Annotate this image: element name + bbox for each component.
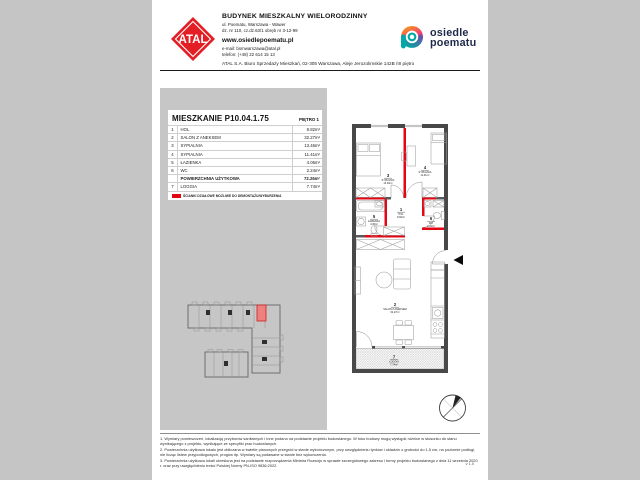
room-label-sypialnia-3: 3 SYPIALNIA 13.46m² xyxy=(382,173,395,185)
page-canvas: ATAL BUDYNEK MIESZKALNY WIELORODZINNY ul… xyxy=(0,0,640,480)
atal-logo: ATAL xyxy=(170,16,216,62)
row-no: 6 xyxy=(168,167,178,174)
row-no: 5 xyxy=(168,159,178,166)
row-name: SYPIALNIA xyxy=(178,151,292,158)
svg-text:2: 2 xyxy=(394,302,397,307)
loggia-area xyxy=(356,349,444,370)
svg-text:1: 1 xyxy=(400,207,403,212)
flyer-document: ATAL BUDYNEK MIESZKALNY WIELORODZINNY ul… xyxy=(152,0,488,480)
svg-text:4.06m²: 4.06m² xyxy=(370,223,378,226)
row-name: WC xyxy=(178,167,292,174)
table-row: 5 ŁAZIENKA 4.06m² xyxy=(168,158,322,166)
header-divider xyxy=(160,70,480,71)
table-row: 2 SALON Z ANEKSEM 32.27m² xyxy=(168,133,322,141)
table-row: 6 WC 2.24m² xyxy=(168,166,322,174)
website-link: www.osiedlepoematu.pl xyxy=(222,37,368,44)
apartment-table: MIESZKANIE P10.04.1.75 PIĘTRO 1 1 HOL 8.… xyxy=(168,110,322,200)
svg-text:13.46m²: 13.46m² xyxy=(383,182,392,185)
room-label-lazienka: 5 ŁAZIENKA 4.06m² xyxy=(368,214,380,226)
osiedle-poematu-wordmark: osiedle poematu xyxy=(430,28,476,49)
total-area: 72.26m² xyxy=(292,175,322,182)
legend-text: ŚCIANKI DZIAŁOWE MOŻLIWE DO DEMONTAŻU/WY… xyxy=(183,194,282,198)
apartment-title: MIESZKANIE P10.04.1.75 xyxy=(172,114,269,123)
furniture xyxy=(355,133,447,345)
row-area: 11.41m² xyxy=(292,151,322,158)
footnotes: 1. Wymiary pomieszczeń, lokalizację przy… xyxy=(160,436,480,469)
address-line-2: dz. nr 110, cz.dz.63/1 obręb nr 3-12-99 xyxy=(222,28,368,33)
highlighted-unit xyxy=(257,305,266,321)
header-text-block: BUDYNEK MIESZKALNY WIELORODZINNY ul. Poe… xyxy=(222,13,368,57)
svg-text:3: 3 xyxy=(387,173,390,178)
atal-logo-text: ATAL xyxy=(179,34,208,46)
osiedle-poematu-logo: osiedle poematu xyxy=(398,24,476,52)
row-area: 8.82m² xyxy=(292,126,322,133)
row-no: 2 xyxy=(168,134,178,141)
svg-text:32.27m²: 32.27m² xyxy=(390,311,399,314)
row-area: 32.27m² xyxy=(292,134,322,141)
entrance-arrow-icon xyxy=(454,255,464,265)
row-area: 2.24m² xyxy=(292,167,322,174)
table-total-row: POWIERZCHNIA UŻYTKOWA 72.26m² xyxy=(168,174,322,182)
svg-text:6: 6 xyxy=(430,216,433,221)
compass-icon xyxy=(440,395,466,421)
row-name: SYPIALNIA xyxy=(178,142,292,149)
svg-text:7.74m²: 7.74m² xyxy=(390,364,398,367)
key-plan-units xyxy=(192,302,283,377)
row-area: 13.46m² xyxy=(292,142,322,149)
footer-divider xyxy=(160,433,480,434)
total-label: POWIERZCHNIA UŻYTKOWA xyxy=(178,175,292,182)
version-label: v 1.0 xyxy=(466,461,474,466)
table-row: 3 SYPIALNIA 13.46m² xyxy=(168,141,322,149)
row-name: HOL xyxy=(178,126,292,133)
svg-text:4: 4 xyxy=(424,165,427,170)
footnote-3: 3. Powierzchnia użytkowa lokali określon… xyxy=(160,458,480,468)
sales-office-line: ATAL S.A. Biuro Sprzedaży Mieszkań, 02-3… xyxy=(222,61,482,66)
svg-text:2.24m²: 2.24m² xyxy=(427,225,435,228)
red-wall-legend: ŚCIANKI DZIAŁOWE MOŻLIWE DO DEMONTAŻU/WY… xyxy=(168,191,322,200)
footnote-1: 1. Wymiary pomieszczeń, lokalizację przy… xyxy=(160,436,480,446)
row-name: LOGGIA xyxy=(178,183,292,190)
floor-label: PIĘTRO 1 xyxy=(299,117,319,122)
svg-text:11.41m²: 11.41m² xyxy=(421,174,430,177)
row-area: 7.74m² xyxy=(292,183,322,190)
email-line: e-mail: bsmwarszawa@atal.pl xyxy=(222,46,368,51)
svg-text:5: 5 xyxy=(373,214,376,219)
apartment-table-header: MIESZKANIE P10.04.1.75 PIĘTRO 1 xyxy=(168,110,322,125)
address-line-1: ul. Poematu, Warszawa - Wawer xyxy=(222,22,368,27)
room-label-salon: 2 SALON Z ANEKSEM 32.27m² xyxy=(383,302,406,314)
red-swatch-icon xyxy=(172,194,181,198)
floor-plan-box: 1 HOL 8.82m² 2 SALON Z ANEKSEM 32.27m² 3 xyxy=(327,88,480,430)
row-no: 3 xyxy=(168,142,178,149)
table-row: 1 HOL 8.82m² xyxy=(168,125,322,133)
table-row: 7 LOGGIA 7.74m² xyxy=(168,182,322,190)
floor-plan: 1 HOL 8.82m² 2 SALON Z ANEKSEM 32.27m² 3 xyxy=(327,88,480,430)
row-no: 4 xyxy=(168,151,178,158)
row-no: 7 xyxy=(168,183,178,190)
row-name: SALON Z ANEKSEM xyxy=(178,134,292,141)
row-name: ŁAZIENKA xyxy=(178,159,292,166)
content-panel: MIESZKANIE P10.04.1.75 PIĘTRO 1 1 HOL 8.… xyxy=(160,88,480,430)
row-area: 4.06m² xyxy=(292,159,322,166)
row-no: 1 xyxy=(168,126,178,133)
building-title: BUDYNEK MIESZKALNY WIELORODZINNY xyxy=(222,13,368,20)
svg-text:8.82m²: 8.82m² xyxy=(397,216,405,219)
table-row: 4 SYPIALNIA 11.41m² xyxy=(168,150,322,158)
phone-line: telefon: (+48) 22 614 15 13 xyxy=(222,52,368,57)
outer-walls xyxy=(352,124,448,373)
osiedle-poematu-mark-icon xyxy=(398,24,426,52)
brand-word-2: poematu xyxy=(430,38,476,48)
building-key-plan xyxy=(180,295,290,395)
row-no xyxy=(168,175,178,182)
footnote-2: 2. Powierzchnia użytkowa lokalu jest obl… xyxy=(160,447,480,457)
room-label-sypialnia-4: 4 SYPIALNIA 11.41m² xyxy=(419,165,432,177)
room-label-hol: 1 HOL 8.82m² xyxy=(397,207,405,219)
